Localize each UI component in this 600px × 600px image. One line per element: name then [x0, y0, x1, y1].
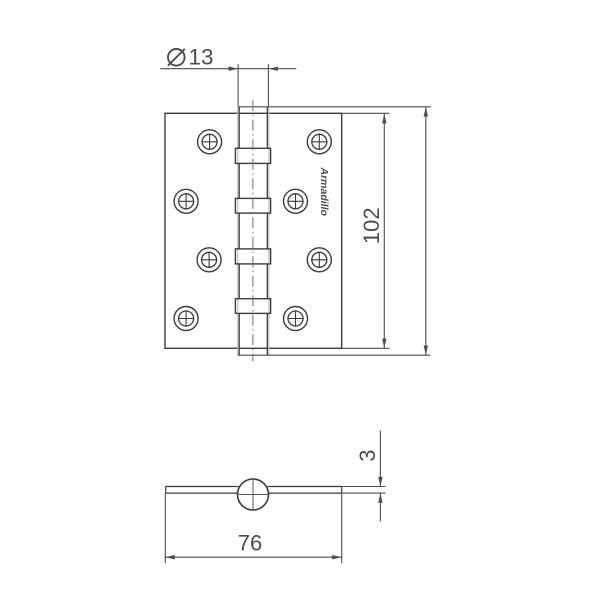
svg-text:13: 13 — [189, 44, 214, 69]
svg-text:102: 102 — [359, 207, 384, 244]
svg-text:3: 3 — [355, 450, 380, 462]
svg-text:Armadillo: Armadillo — [318, 167, 330, 217]
svg-text:76: 76 — [238, 530, 262, 555]
